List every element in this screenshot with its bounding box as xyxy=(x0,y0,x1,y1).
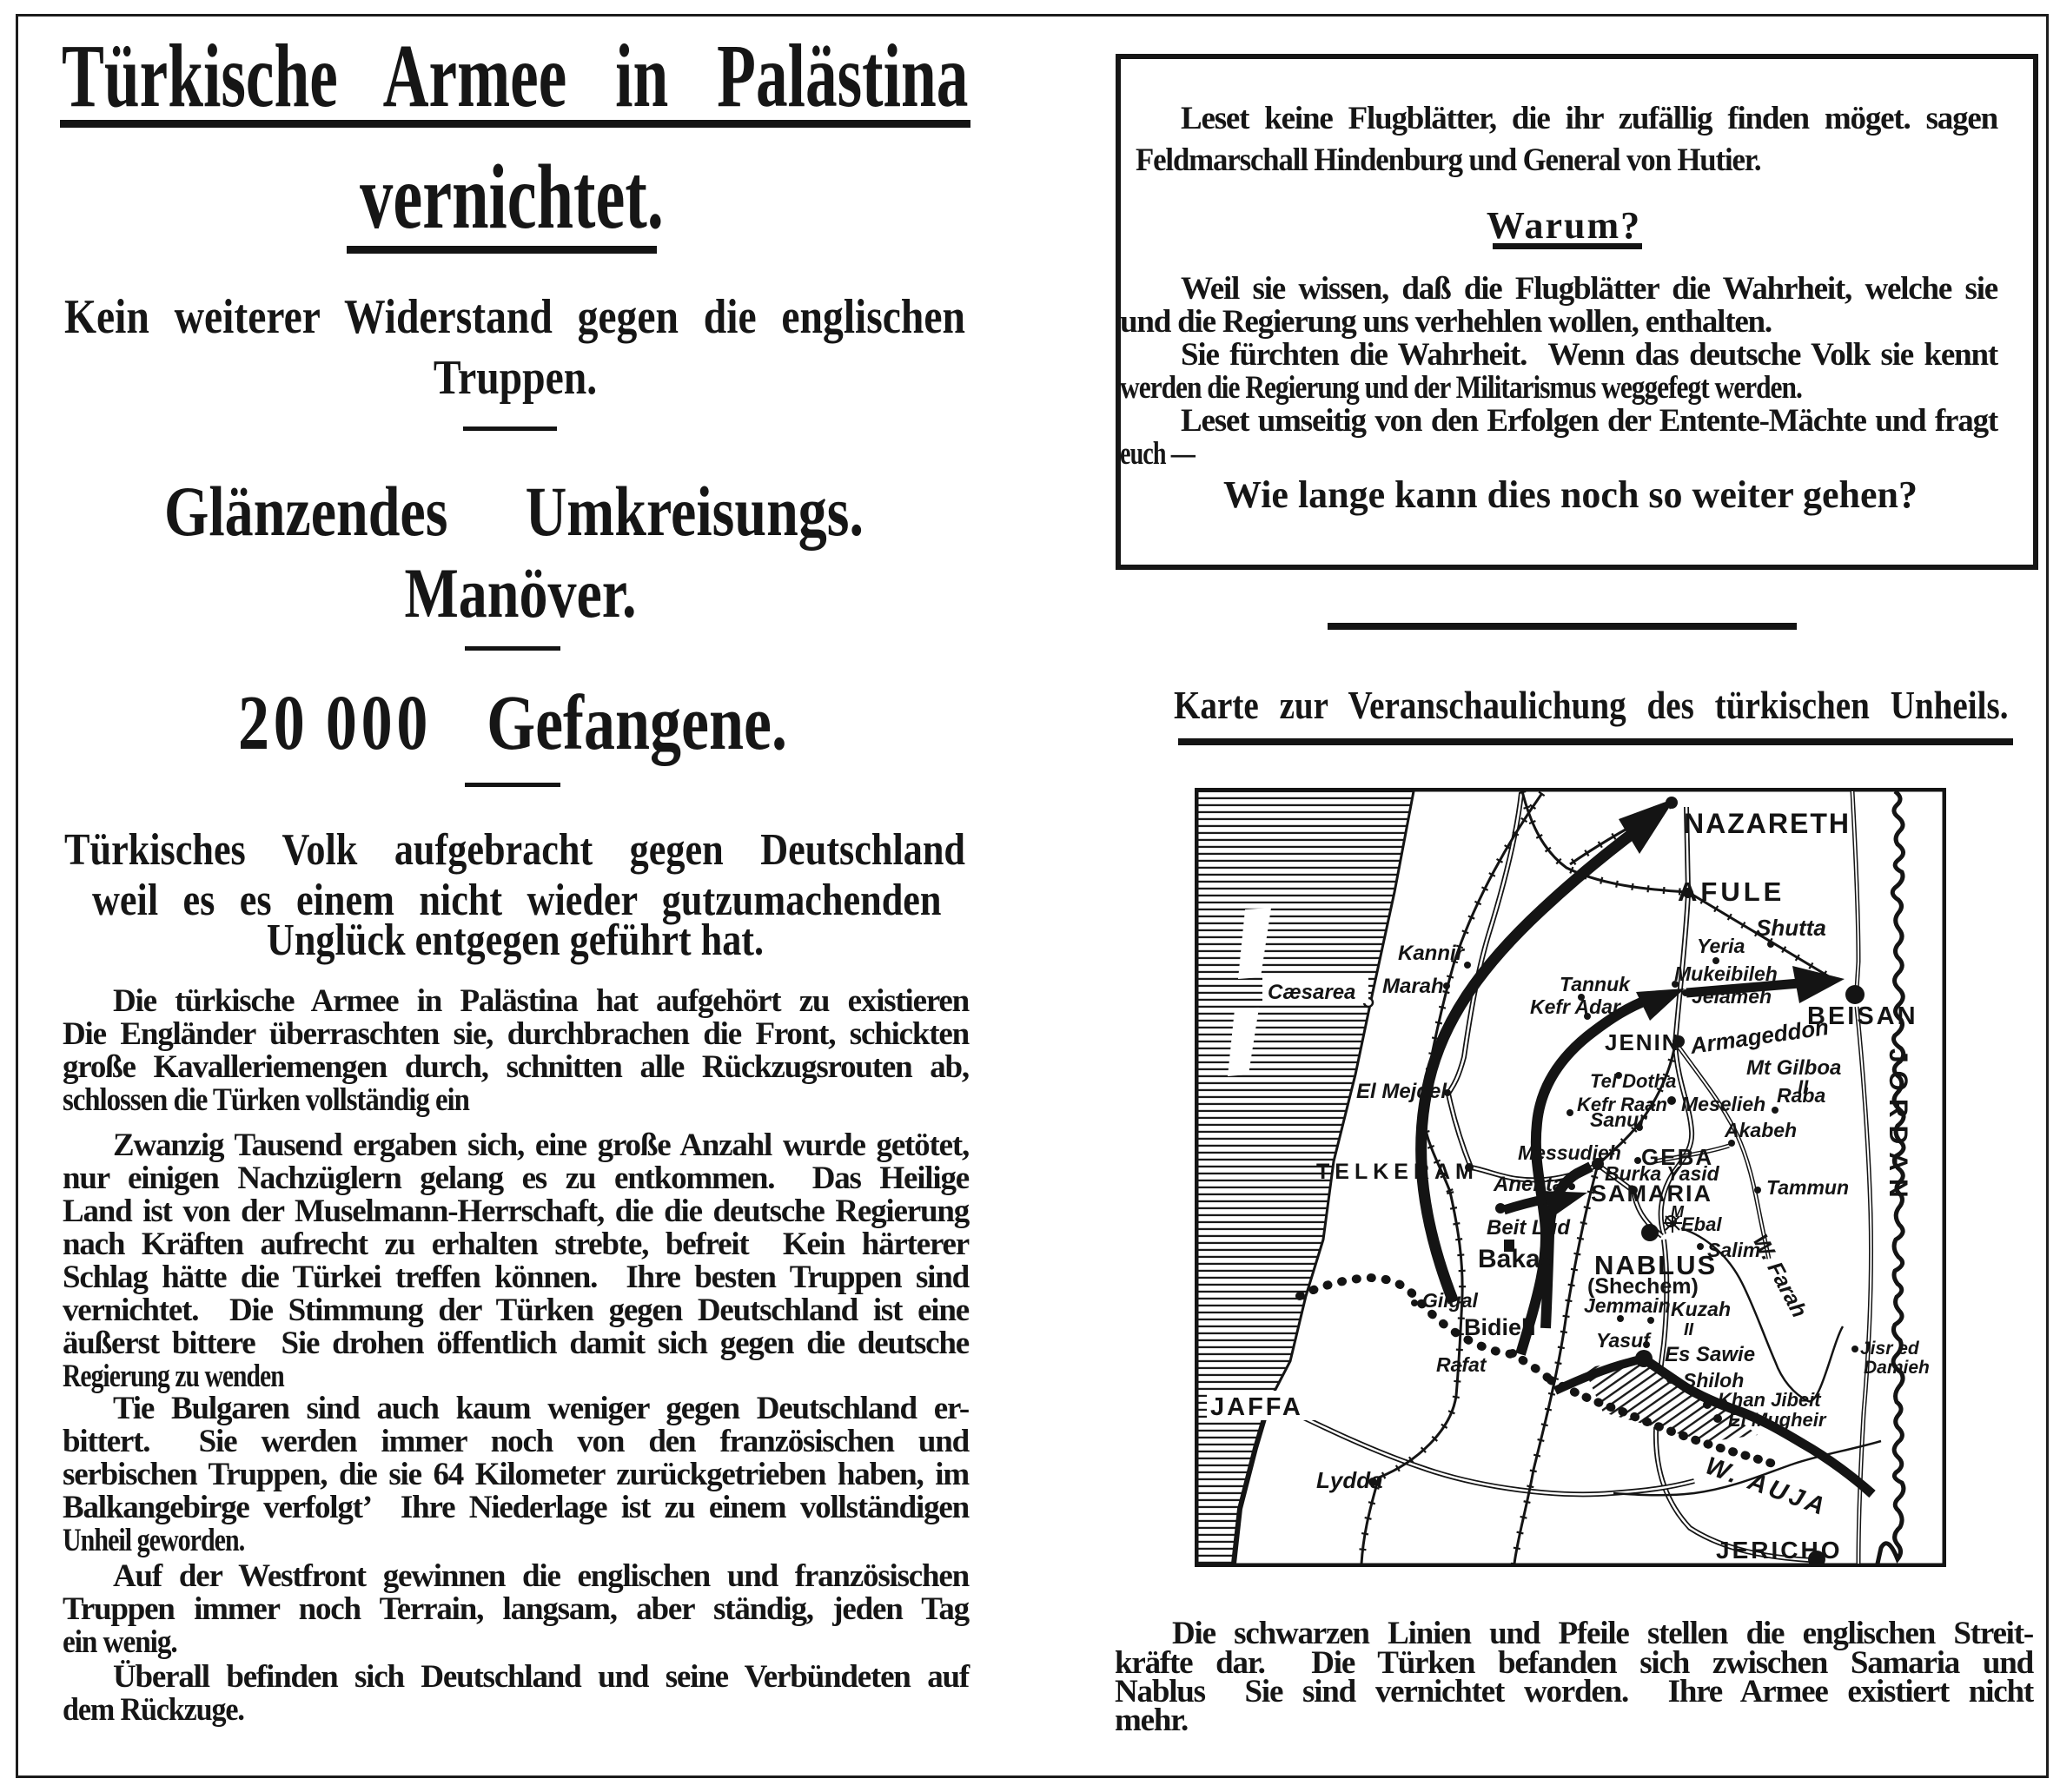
svg-text:Khan Jibeit: Khan Jibeit xyxy=(1718,1389,1822,1411)
svg-text:Lydda: Lydda xyxy=(1316,1467,1383,1493)
svg-text:Mt Gilboa: Mt Gilboa xyxy=(1746,1056,1841,1080)
svg-text:Baka: Baka xyxy=(1478,1245,1540,1273)
svg-text:Bidieh: Bidieh xyxy=(1464,1314,1536,1340)
svg-text:II: II xyxy=(1684,1320,1694,1339)
svg-text:Salim: Salim xyxy=(1707,1239,1760,1261)
svg-text:Jisr ed: Jisr ed xyxy=(1860,1339,1920,1359)
svg-text:Beit Lud: Beit Lud xyxy=(1487,1216,1571,1240)
svg-text:Rafat: Rafat xyxy=(1436,1353,1487,1376)
svg-text:Es Sawie: Es Sawie xyxy=(1665,1343,1755,1366)
svg-text:Kannir: Kannir xyxy=(1398,942,1466,965)
svg-text:Jemmain: Jemmain xyxy=(1584,1294,1671,1317)
svg-text:Mukeibileh: Mukeibileh xyxy=(1674,962,1778,985)
svg-text:Jelameh: Jelameh xyxy=(1692,985,1772,1008)
svg-text:TELKERAM: TELKERAM xyxy=(1316,1160,1479,1184)
svg-text:El Mugheir: El Mugheir xyxy=(1728,1409,1827,1431)
svg-text:Tammun: Tammun xyxy=(1766,1176,1849,1199)
svg-text:Shutta: Shutta xyxy=(1756,915,1826,941)
svg-text:Messudieh: Messudieh xyxy=(1518,1141,1621,1164)
svg-text:JORDAN: JORDAN xyxy=(1884,1048,1912,1206)
svg-text:Tel Dotha: Tel Dotha xyxy=(1590,1070,1676,1092)
svg-text:SAMARIA: SAMARIA xyxy=(1591,1180,1712,1207)
svg-text:Akabeh: Akabeh xyxy=(1724,1119,1797,1141)
svg-text:Meselieh: Meselieh xyxy=(1681,1093,1765,1115)
svg-text:Anebta: Anebta xyxy=(1493,1173,1564,1196)
svg-text:NAZARETH: NAZARETH xyxy=(1684,808,1851,839)
svg-text:Cæsarea: Cæsarea xyxy=(1268,981,1355,1004)
svg-text:Raba: Raba xyxy=(1777,1084,1825,1107)
svg-text:M: M xyxy=(1671,1203,1685,1220)
svg-text:Gilgal: Gilgal xyxy=(1422,1289,1479,1312)
svg-text:AFULE: AFULE xyxy=(1678,876,1785,907)
svg-text:Tannuk: Tannuk xyxy=(1560,973,1631,995)
svg-text:JAFFA: JAFFA xyxy=(1210,1393,1303,1421)
svg-text:Armageddon: Armageddon xyxy=(1688,1014,1831,1059)
svg-text:Yasuf: Yasuf xyxy=(1596,1329,1652,1352)
svg-text:El Mejdel: El Mejdel xyxy=(1356,1080,1447,1103)
svg-text:JERICHO: JERICHO xyxy=(1716,1537,1842,1564)
svg-text:Yeria: Yeria xyxy=(1697,935,1745,957)
svg-text:Ebal: Ebal xyxy=(1681,1213,1722,1235)
svg-text:Sanur: Sanur xyxy=(1590,1108,1647,1131)
svg-text:Kuzah: Kuzah xyxy=(1671,1298,1731,1320)
svg-text:JENIN: JENIN xyxy=(1605,1029,1680,1055)
svg-text:Marah: Marah xyxy=(1382,975,1444,998)
svg-text:Damieh: Damieh xyxy=(1864,1358,1930,1378)
svg-text:Kefr Adar: Kefr Adar xyxy=(1530,995,1621,1018)
